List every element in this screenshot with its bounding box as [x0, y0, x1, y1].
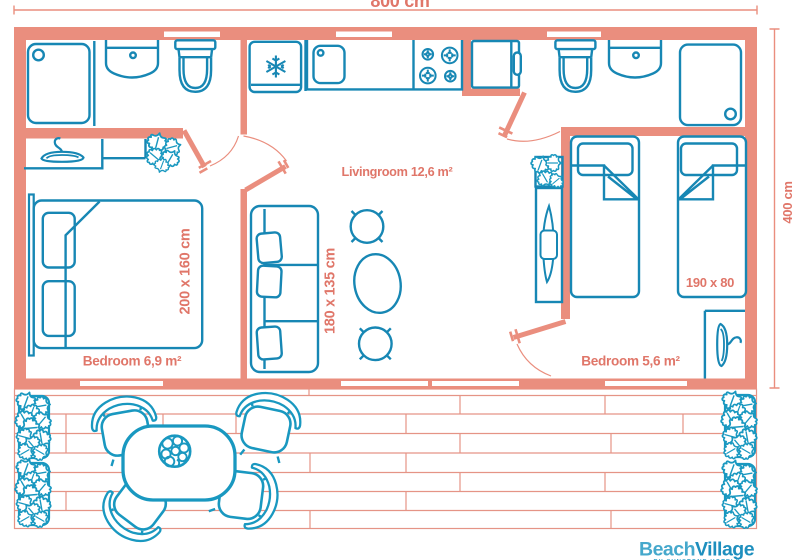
svg-text:800 cm: 800 cm	[370, 0, 429, 11]
svg-text:190 x 80: 190 x 80	[686, 275, 734, 290]
svg-text:200 x 160 cm: 200 x 160 cm	[178, 229, 194, 315]
svg-text:Bedroom 5,6 m²: Bedroom 5,6 m²	[581, 354, 680, 369]
svg-text:Bedroom 6,9 m²: Bedroom 6,9 m²	[83, 354, 182, 369]
svg-text:400 cm: 400 cm	[780, 181, 795, 223]
svg-text:180 x 135 cm: 180 x 135 cm	[323, 248, 339, 334]
svg-text:Livingroom 12,6 m²: Livingroom 12,6 m²	[342, 165, 453, 179]
svg-text:BeachVillage: BeachVillage	[639, 539, 755, 560]
